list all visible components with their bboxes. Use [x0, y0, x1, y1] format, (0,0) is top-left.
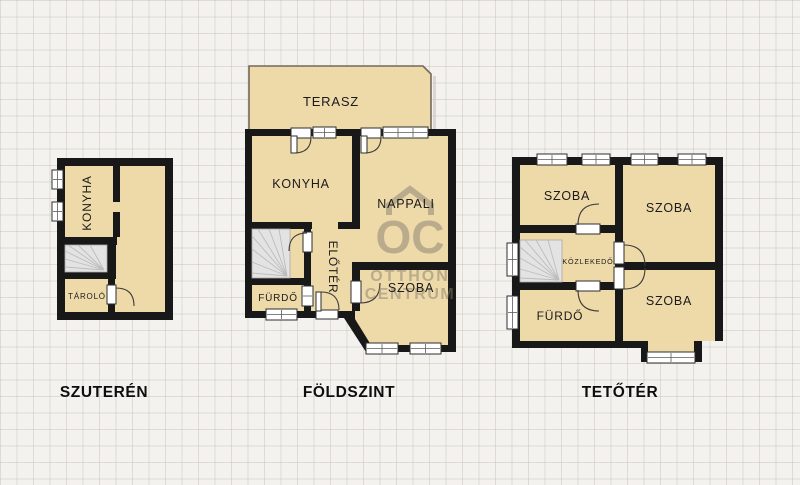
window — [313, 127, 336, 138]
floorplan-sheet: KONYHA TÁROLÓ — [0, 0, 800, 485]
window — [678, 154, 706, 165]
caption-attic: TETŐTÉR — [582, 383, 659, 401]
window — [631, 154, 658, 165]
room-label-tarolo: TÁROLÓ — [68, 292, 106, 301]
window — [383, 127, 428, 138]
room-label-szoba-attic-topright: SZOBA — [646, 201, 692, 215]
bay-window — [647, 352, 695, 363]
terrace-shadow — [433, 76, 436, 129]
room-label-kozlekedo: KÖZLEKEDŐ — [562, 257, 613, 266]
bathroom-door — [302, 286, 313, 306]
room-label-furdo-ground: FÜRDŐ — [258, 290, 298, 304]
ground-stairs — [252, 229, 290, 278]
basement-window — [52, 202, 63, 221]
room-label-szoba-ground: SZOBA — [388, 281, 434, 295]
window — [266, 309, 297, 320]
ground-floor-plan: OC OTTHON CENTRUM TERASZ KONYHA NAPPALI … — [245, 66, 456, 354]
floorplan-drawing: KONYHA TÁROLÓ — [0, 0, 800, 485]
caption-ground: FÖLDSZINT — [303, 384, 395, 401]
attic-stairs — [520, 240, 562, 282]
window — [366, 343, 398, 354]
room-label-konyha-ground: KONYHA — [272, 177, 330, 191]
watermark-initials: OC — [376, 211, 445, 263]
room-label-eloter: ELŐTÉR — [326, 241, 341, 294]
window — [582, 154, 610, 165]
attic-plan: SZOBA SZOBA KÖZLEKEDŐ FÜRDŐ SZOBA — [507, 154, 723, 363]
room-label-terasz: TERASZ — [303, 94, 359, 109]
room-label-furdo-attic: FÜRDŐ — [537, 308, 584, 323]
caption-basement: SZUTERÉN — [60, 384, 148, 401]
room-label-nappali: NAPPALI — [377, 197, 434, 211]
room-label-szoba-attic-bottom: SZOBA — [646, 294, 692, 308]
window — [410, 343, 441, 354]
window — [507, 296, 518, 329]
window — [507, 243, 518, 276]
basement-window — [52, 170, 63, 189]
basement-stairs — [65, 245, 107, 272]
room-label-konyha-basement: KONYHA — [80, 175, 94, 230]
window — [537, 154, 567, 165]
basement-plan: KONYHA TÁROLÓ — [52, 158, 173, 320]
room-label-szoba-attic-topleft: SZOBA — [544, 189, 590, 203]
